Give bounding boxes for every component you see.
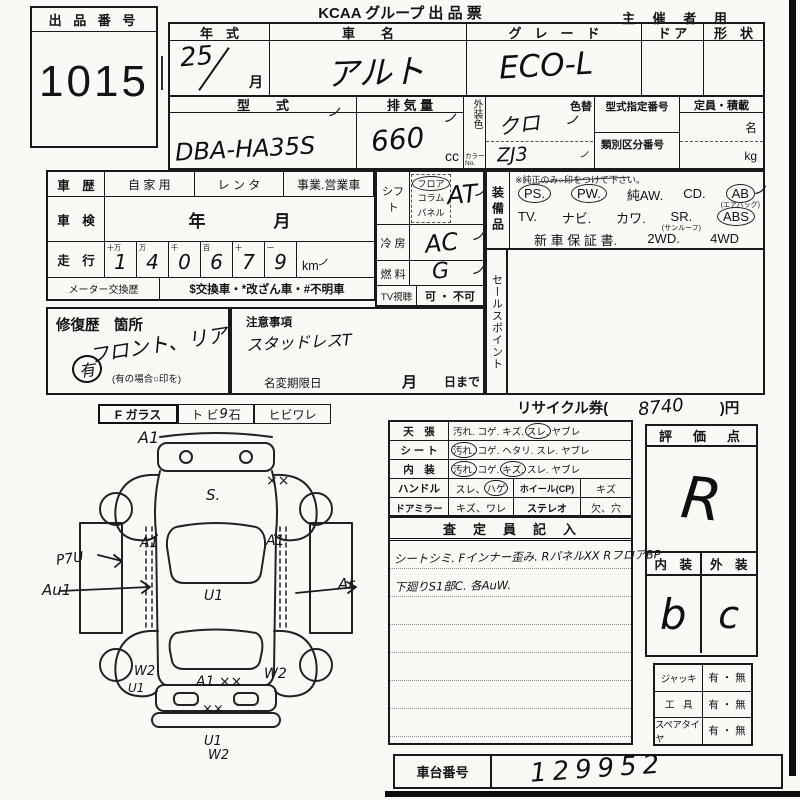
designation-no-cell: 型式指定番号 類別区分番号 [595, 97, 680, 168]
handle-wheel-row: ハンドル スレ、ハゲ ホイール(CP) キズ [390, 479, 631, 498]
rating-value: R [642, 442, 761, 557]
displacement-value: 660 [370, 121, 426, 159]
interior-label: 内 装 [390, 460, 449, 478]
damage-label-below-w: W2 [208, 748, 229, 763]
handle-label: ハンドル [390, 479, 449, 497]
equipment-content: ※純正のみ○印をつけて下さい。 PS.PW.純AW.CD.AB(エアバッグ) T… [510, 172, 763, 248]
seat-label: シ ー ト [390, 441, 449, 459]
shift-row: シフト フロアコラムパネル AT [377, 172, 483, 225]
mirror-label: ドアミラー [390, 498, 449, 517]
equipment-item: 2WD. [647, 230, 680, 248]
condition-item: コゲ. [477, 424, 501, 438]
shift-option: パネル [412, 206, 450, 221]
capacity-cell: 定員・積載 名 kg [680, 97, 763, 168]
equipment-item: ナビ. [562, 208, 592, 228]
tick-mark-airbag: ノ [752, 179, 770, 202]
damage-label-front-right-fender: ×× [266, 473, 289, 489]
color-cell-divider [486, 141, 593, 142]
grade-value: ECO-L [498, 46, 594, 87]
equipment-item: 純AW. [627, 185, 663, 205]
mileage-digit-cell: 一9 [265, 242, 297, 277]
caution-label: 注意事項 [246, 314, 292, 330]
stone-chip-prefix: ト ビ [191, 406, 218, 423]
interior-row: 内 装 汚れ.コゲ.キズ.スレ.ヤブレ [390, 460, 631, 479]
equipment-line-1: PS.PW.純AW.CD.AB(エアバッグ) [510, 185, 763, 208]
condition-item: ヤブレ [551, 424, 582, 438]
exterior-color-value: クロ [496, 107, 541, 142]
lot-number-box: 出 品 番 号 1015 [30, 6, 158, 148]
stone-chip-cell: ト ビ9石 [178, 404, 254, 424]
chassis-number-value: 129952 [529, 749, 666, 788]
sales-point-strip: セールスポイント [485, 248, 508, 395]
history-block: 車 歴 自 家 用レ ン タ事業.営業車 車 検 年 月 走 行 十万1万4千0… [46, 170, 376, 301]
stone-chip-mark: 9 [220, 407, 228, 422]
condition-item: スレ. [526, 462, 550, 476]
equipment-item: PS. [518, 185, 551, 203]
caution-value: スタッドレスT [245, 326, 352, 356]
shift-label: シフト [377, 172, 410, 225]
stereo-label: ステレオ [514, 498, 581, 517]
inspection-value: 年 月 [105, 197, 374, 241]
lot-number-value: 1015 [32, 32, 156, 132]
capacity-persons-unit: 名 [745, 119, 757, 136]
condition-item: コゲ. [477, 462, 501, 476]
car-name-cell: 車 名 アルト [270, 24, 467, 95]
aircon-row: 冷 房 AC [377, 225, 483, 261]
inspector-note-line: 下廻りS1部C. 各AuW. [394, 570, 631, 602]
history-option: 事業.営業車 [284, 172, 374, 196]
inspection-row: 車 検 年 月 [48, 197, 374, 242]
history-row: 車 歴 自 家 用レ ン タ事業.営業車 [48, 172, 374, 197]
meter-history-label: メーター交換歴 [48, 278, 160, 299]
repair-history-box: 修復歴 箇所 フロント、リア 有 (有の場合○印を) [46, 307, 230, 395]
vehicle-table: 年 式 25 月 車 名 アルト グ レ ー ド ECO-L ド ア 形 状 型… [168, 22, 765, 170]
year-value: 25 [179, 41, 215, 74]
damage-label-trunk: A1 ×× [196, 674, 242, 690]
door-cell: ド ア [642, 24, 704, 95]
recycle-fee-value: 8740 [637, 394, 685, 420]
rating-sub-values: b c [647, 576, 756, 653]
tv-label: TV視聴 [377, 286, 417, 305]
door-label: ド ア [642, 24, 703, 41]
mileage-label: 走 行 [48, 242, 105, 277]
exterior-rating-value: c [702, 576, 757, 653]
accessory-row: スペアタイヤ 有 ・ 無 [655, 718, 751, 745]
stereo-value: 欠、穴 [581, 498, 631, 517]
repair-history-label: 修復歴 箇所 [56, 314, 143, 335]
shift-option: フロア [412, 176, 450, 191]
shift-option: コラム [412, 191, 450, 206]
condition-table: 天 張 汚れ.コゲ.キズ.スレ.ヤブレ シ ー ト 汚れ.コゲ.ヘタリ.スレ.ヤ… [388, 420, 633, 517]
condition-item: キズ. [501, 424, 525, 438]
displacement-unit: cc [445, 148, 459, 164]
damage-label-right-door: Ar [338, 575, 354, 593]
recycle-fee-prefix: リサイクル券( [517, 397, 608, 418]
fuel-label: 燃 料 [377, 261, 410, 286]
equipment-line-3: 新 車 保 証 書.2WD.4WD [510, 230, 763, 248]
repair-note: (有の場合○印を) [112, 371, 181, 385]
capacity-weight-unit: kg [744, 149, 757, 163]
history-options: 自 家 用レ ン タ事業.営業車 [105, 172, 374, 196]
damage-label-right-pillar: A1 [266, 533, 284, 549]
condition-item: コゲ. [477, 443, 501, 457]
equipment-item: 新 車 保 証 書. [534, 230, 617, 250]
meter-row: メーター交換歴 $交換車・*改ざん車・#不明車 [48, 278, 374, 299]
damage-label-rear-bumper: ×× [202, 702, 224, 717]
damage-label-below-u: U1 [204, 734, 222, 749]
accessory-value: 有 ・ 無 [703, 692, 751, 718]
ceiling-items: 汚れ.コゲ.キズ.スレ.ヤブレ [449, 422, 631, 440]
color-no-value: ZJ3 [497, 143, 528, 166]
recycle-fee-suffix: )円 [720, 397, 739, 418]
accessory-row: 工 具 有 ・ 無 [655, 692, 751, 719]
damage-label-left-door: Au1 [42, 581, 71, 599]
lot-number-label: 出 品 番 号 [32, 8, 156, 32]
rating-box: 評 価 点 R 内 装 外 装 b c [645, 424, 758, 657]
condition-item: 汚れ. [452, 424, 476, 438]
mileage-digit-cell: 十7 [233, 242, 265, 277]
color-no-label: カラーNo. [465, 153, 485, 167]
accessory-label: スペアタイヤ [655, 718, 703, 744]
year-label: 年 式 [170, 24, 269, 41]
wheel-value: キズ [581, 479, 631, 497]
accessory-label: 工 具 [655, 692, 703, 718]
front-glass-label: F ガラス [98, 404, 178, 424]
mileage-digit-cell: 百6 [201, 242, 233, 277]
equipment-label: 装備品 [490, 186, 507, 234]
mileage-digit-cell: 十万1 [105, 242, 137, 277]
interior-rating-label: 内 装 [647, 553, 702, 574]
interior-items: 汚れ.コゲ.キズ.スレ.ヤブレ [449, 460, 631, 478]
accessory-value: 有 ・ 無 [703, 718, 751, 744]
seat-items: 汚れ.コゲ.ヘタリ.スレ.ヤブレ [449, 441, 631, 459]
equipment-item: AB(エアバッグ) [726, 185, 755, 203]
handle-value: スレ、ハゲ [449, 479, 514, 497]
aircon-label: 冷 房 [377, 225, 410, 261]
inspector-note-line: シートシミ. Fインナー歪み. RパネルXX RフロアBP [394, 542, 631, 574]
fuel-row: 燃 料 G [377, 261, 483, 286]
deadline-day-label: 日まで [444, 373, 480, 390]
damage-diagram: A1 S. ×× A1 A1 P7U Au1 Ar U1 W2 U1 A1 ××… [40, 425, 372, 777]
sales-point-label: セールスポイント [489, 274, 505, 370]
damage-label-left-rear-fender-w: W2 [134, 664, 155, 679]
year-cell: 年 式 25 月 [170, 24, 270, 95]
mileage-digit-cell: 千0 [169, 242, 201, 277]
color-label-strip: 外装色 カラーNo. [464, 97, 486, 168]
condition-item: 汚れ. [451, 461, 477, 477]
car-name-label: 車 名 [270, 24, 466, 41]
grade-label: グ レ ー ド [467, 24, 641, 41]
accessories-table: ジャッキ 有 ・ 無 工 具 有 ・ 無 スペアタイヤ 有 ・ 無 [653, 663, 753, 746]
scan-artifact-right-bar [789, 0, 796, 776]
sales-point-area [506, 248, 765, 395]
ceiling-row: 天 張 汚れ.コゲ.キズ.スレ.ヤブレ [390, 422, 631, 441]
history-label: 車 歴 [48, 172, 105, 196]
crack-label: ヒビワレ [254, 404, 331, 424]
chassis-number-box: 車台番号 129952 [393, 754, 783, 789]
sheet-title: KCAA グループ 出 品 票 [200, 2, 600, 23]
equipment-item: カワ. [616, 208, 646, 228]
grade-cell: グ レ ー ド ECO-L [467, 24, 642, 95]
accessory-value: 有 ・ 無 [703, 665, 751, 691]
condition-item: 汚れ. [451, 442, 477, 458]
equipment-item: PW. [571, 185, 607, 203]
scan-artifact-line [161, 56, 163, 90]
equipment-block: 装備品 ※純正のみ○印をつけて下さい。 PS.PW.純AW.CD.AB(エアバッ… [485, 170, 765, 250]
wheel-label: ホイール(CP) [514, 479, 581, 497]
accessory-row: ジャッキ 有 ・ 無 [655, 665, 751, 692]
condition-item: ヤブレ [551, 462, 582, 476]
equipment-item: ABS [717, 208, 755, 226]
tv-value: 可 ・ 不可 [417, 286, 483, 305]
damage-label-roof: U1 [204, 588, 223, 604]
accessory-label: ジャッキ [655, 665, 703, 691]
damage-label-left-pillar: A1 [140, 535, 158, 551]
model-code-value: DBA-HA35S [174, 131, 316, 166]
shape-cell: 形 状 [704, 24, 763, 95]
inspector-notes-header: 査 定 員 記 入 [390, 518, 631, 541]
damage-label-hood: S. [206, 486, 220, 504]
mirror-stereo-row: ドアミラー キズ、ワレ ステレオ 欠、穴 [390, 498, 631, 517]
equipment-line-2: TV.ナビ.カワ.SR.(サンルーフ)ABS [510, 208, 763, 230]
auction-sheet: KCAA グループ 出 品 票 主 催 者 用 出 品 番 号 1015 年 式… [0, 0, 800, 800]
inspector-notes-lines: シートシミ. Fインナー歪み. RパネルXX RフロアBP下廻りS1部C. 各A… [394, 542, 632, 602]
mileage-digits: 十万1万4千0百6十7一9 [105, 242, 297, 277]
equipment-item: TV. [518, 208, 537, 226]
equipment-item: SR.(サンルーフ) [671, 208, 693, 226]
mirror-value: キズ、ワレ [449, 498, 514, 517]
car-name-value: アルト [325, 44, 425, 95]
meter-legend: $交換車・*改ざん車・#不明車 [160, 278, 374, 299]
caution-box: 注意事項 スタッドレスT 名変期限日 月 日まで [230, 307, 485, 395]
damage-label-right-rear-fender: W2 [264, 666, 287, 682]
damage-label-roof-front: A1 [138, 428, 159, 447]
damage-label-left-rear-fender-u: U1 [128, 681, 144, 695]
exterior-color-cell: 外装色 カラーNo. 色替 クロ ZJ3 [464, 97, 595, 168]
fuel-value: G [431, 258, 450, 284]
aircon-value: AC [424, 227, 460, 258]
condition-item: ヘタリ. [501, 443, 534, 457]
condition-item: スレ. [535, 443, 559, 457]
inspector-notes-box: 査 定 員 記 入 シートシミ. Fインナー歪み. RパネルXX RフロアBP下… [388, 516, 633, 745]
shape-label: 形 状 [704, 24, 763, 41]
condition-item: スレ. [525, 423, 551, 439]
history-option: 自 家 用 [105, 172, 195, 196]
recycle-fee-line: リサイクル券( 8740 )円 [509, 394, 765, 420]
name-change-deadline-label: 名変期限日 [264, 375, 322, 391]
capacity-divider [680, 141, 763, 142]
designation-no-label: 型式指定番号 [595, 97, 679, 133]
handle-value-prefix: スレ、 [455, 481, 485, 496]
capacity-label: 定員・積載 [680, 97, 763, 113]
inspection-label: 車 検 [48, 197, 105, 241]
seat-row: シ ー ト 汚れ.コゲ.ヘタリ.スレ.ヤブレ [390, 441, 631, 460]
tv-row: TV視聴 可 ・ 不可 [377, 286, 483, 305]
class-no-label: 類別区分番号 [601, 137, 664, 152]
mileage-digit-cell: 万4 [137, 242, 169, 277]
equipment-label-strip: 装備品 [487, 172, 510, 248]
controls-block: シフト フロアコラムパネル AT 冷 房 AC 燃 料 G TV視聴 可 ・ 不… [375, 170, 485, 307]
history-option: レ ン タ [195, 172, 285, 196]
scan-artifact-bottom-bar [385, 791, 800, 797]
deadline-month-label: 月 [402, 371, 417, 392]
equipment-item: CD. [683, 185, 705, 203]
interior-rating-value: b [647, 576, 702, 653]
equipment-item: 4WD [710, 230, 739, 248]
condition-item: ヤブレ [560, 443, 591, 457]
exterior-color-label: 外装色 [469, 99, 484, 129]
handle-value-circled: ハゲ [484, 480, 507, 496]
ceiling-label: 天 張 [390, 422, 449, 440]
year-month-unit: 月 [249, 72, 263, 92]
mileage-unit-cell: km [297, 242, 374, 277]
chassis-number-label: 車台番号 [395, 756, 492, 787]
stone-chip-suffix: 石 [229, 406, 241, 423]
condition-item: キズ. [500, 461, 526, 477]
